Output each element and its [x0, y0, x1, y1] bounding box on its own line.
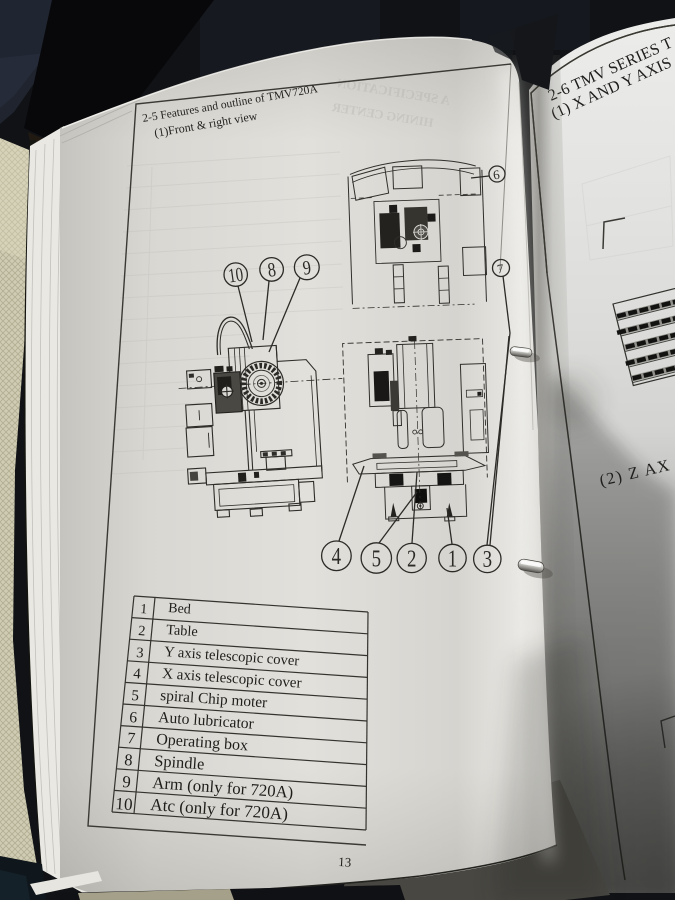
svg-text:4: 4: [332, 543, 342, 570]
svg-text:1: 1: [140, 602, 148, 617]
svg-text:10: 10: [115, 794, 133, 814]
svg-text:Bed: Bed: [168, 601, 192, 618]
svg-text:Table: Table: [166, 622, 199, 640]
svg-text:2: 2: [407, 545, 416, 572]
svg-text:1: 1: [448, 545, 457, 572]
svg-text:5: 5: [372, 545, 381, 572]
svg-text:8: 8: [124, 750, 134, 770]
svg-text:3: 3: [483, 546, 492, 573]
svg-text:5: 5: [131, 687, 140, 705]
svg-text:13: 13: [338, 854, 352, 870]
svg-text:7: 7: [127, 730, 136, 748]
svg-text:Spindle: Spindle: [154, 751, 205, 773]
svg-text:9: 9: [122, 772, 132, 792]
svg-text:6: 6: [129, 709, 138, 727]
svg-text:2: 2: [138, 623, 146, 639]
svg-text:3: 3: [136, 645, 144, 661]
